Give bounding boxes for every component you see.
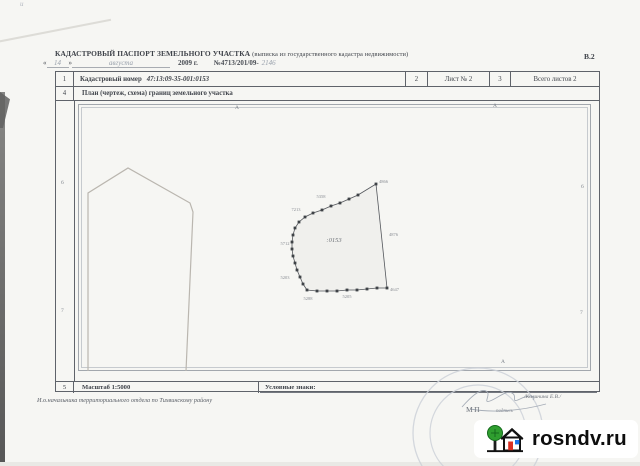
title-subtitle: (выписка из государственного кадастра не…	[252, 51, 408, 58]
boundary-point-marker	[304, 216, 307, 219]
handwritten-day: 14	[47, 59, 69, 68]
scan-edge-artifact	[0, 92, 5, 466]
point-label: 5358	[317, 194, 327, 199]
boundary-point-marker	[296, 269, 299, 272]
frame-mark-left-bottom: 7	[61, 308, 64, 314]
row4-index: 4	[56, 86, 74, 100]
official-title: И.о.начальника территориального отдела п…	[37, 397, 212, 404]
handwritten-month: августа	[72, 59, 170, 68]
boundary-point-marker	[326, 290, 329, 293]
point-label: 5712	[281, 241, 290, 246]
boundary-point-marker	[339, 202, 342, 205]
scan-fold-artifact	[0, 19, 111, 43]
point-label: 5203	[281, 275, 291, 280]
document-number-prefix: №4713/201/09-	[214, 59, 259, 67]
boundary-point-marker	[299, 276, 302, 279]
boundary-point-marker	[306, 289, 309, 292]
frame-mark-right-bottom: 7	[580, 310, 583, 316]
watermark-text: rosndv.ru	[532, 427, 627, 451]
table-row-cadastral-number: 1 Кадастровый номер 47:13:09-35-001:0153…	[56, 72, 599, 87]
boundary-point-marker	[348, 198, 351, 201]
boundary-point-marker	[316, 290, 319, 293]
tree-icon	[488, 426, 503, 452]
house-icon	[502, 430, 522, 451]
point-label: 4876	[389, 232, 399, 237]
scanned-page: и КАДАСТРОВЫЙ ПАСПОРТ ЗЕМЕЛЬНОГО УЧАСТКА…	[0, 0, 640, 466]
boundary-point-marker	[375, 183, 378, 186]
point-label: 4866	[379, 179, 389, 184]
document-title: КАДАСТРОВЫЙ ПАСПОРТ ЗЕМЕЛЬНОГО УЧАСТКА (…	[55, 49, 595, 58]
form-code: В.2	[584, 52, 595, 61]
date-line: « 14 » августа 2009 г. №4713/201/09- 214…	[43, 59, 276, 68]
scan-bottom-edge	[0, 462, 640, 466]
boundary-point-marker	[366, 288, 369, 291]
row1-index: 1	[56, 72, 74, 86]
table-row-plan-title: 4 План (чертеж, схема) границ земельного…	[56, 86, 599, 101]
boundary-point-marker	[321, 209, 324, 212]
frame-mark-right-top: 6	[581, 184, 584, 190]
boundary-point-marker	[294, 227, 297, 230]
cadastral-number-label: Кадастровый номер	[80, 76, 142, 83]
boundary-point-marker	[294, 262, 297, 265]
signatory-name: /Калинина Е.В./	[524, 394, 561, 400]
boundary-point-marker	[336, 290, 339, 293]
plan-drawing: :0153 4866 5358 7213 5712 5203 5288 5205…	[78, 104, 591, 371]
plan-title: План (чертеж, схема) границ земельного у…	[74, 86, 233, 100]
boundary-point-marker	[357, 194, 360, 197]
frame-letter-top-right: А	[493, 103, 497, 109]
scan-edge-wedge-artifact	[0, 92, 10, 128]
signature-caption: подпись	[496, 409, 513, 414]
point-label: 5288	[304, 296, 314, 301]
boundary-point-marker	[302, 283, 305, 286]
total-sheets-cell: Всего листов 2	[511, 72, 599, 86]
boundary-point-marker	[292, 234, 295, 237]
ground-line	[487, 450, 523, 452]
boundary-point-marker	[291, 248, 294, 251]
point-label: 5205	[343, 294, 353, 299]
boundary-point-marker	[298, 221, 301, 224]
title-main: КАДАСТРОВЫЙ ПАСПОРТ ЗЕМЕЛЬНОГО УЧАСТКА	[55, 49, 250, 58]
watermark-badge: rosndv.ru	[474, 420, 638, 458]
row5-index: 5	[56, 382, 74, 393]
point-label: 7213	[292, 207, 302, 212]
watermark-logo	[485, 424, 527, 454]
year-text: 2009 г.	[178, 59, 198, 67]
row1-index-3: 3	[490, 72, 511, 86]
scale-label: Масштаб 1:5000	[74, 382, 259, 393]
parcel-number-label: :0153	[326, 237, 342, 244]
boundary-point-marker	[356, 289, 359, 292]
boundary-point-marker	[292, 255, 295, 258]
sheet-number-cell: Лист № 2	[428, 72, 490, 86]
frame-letter-bottom-right: А	[501, 359, 505, 365]
row1-index-2: 2	[406, 72, 428, 86]
point-label: 4647	[390, 287, 400, 292]
boundary-point-marker	[386, 287, 389, 290]
cadastral-number-cell: Кадастровый номер 47:13:09-35-001:0153	[74, 72, 406, 86]
handwritten-corner-mark: и	[20, 0, 24, 8]
stamp-place-mark: МП	[466, 405, 481, 414]
frame-mark-left-top: 6	[61, 180, 64, 186]
cadastral-number-value: 47:13:09-35-001:0153	[147, 76, 209, 83]
table-left-column-line	[74, 100, 75, 381]
boundary-point-marker	[376, 287, 379, 290]
boundary-point-marker	[312, 212, 315, 215]
frame-letter-top-left: А	[235, 105, 239, 111]
table-row-scale: 5 Масштаб 1:5000 Условные знаки:	[56, 381, 599, 393]
boundary-point-marker	[291, 241, 294, 244]
legend-label: Условные знаки:	[259, 382, 599, 393]
boundary-point-marker	[330, 205, 333, 208]
boundary-point-marker	[346, 289, 349, 292]
adjacent-boundary-line	[88, 168, 193, 371]
handwritten-number: 2146	[262, 59, 276, 67]
